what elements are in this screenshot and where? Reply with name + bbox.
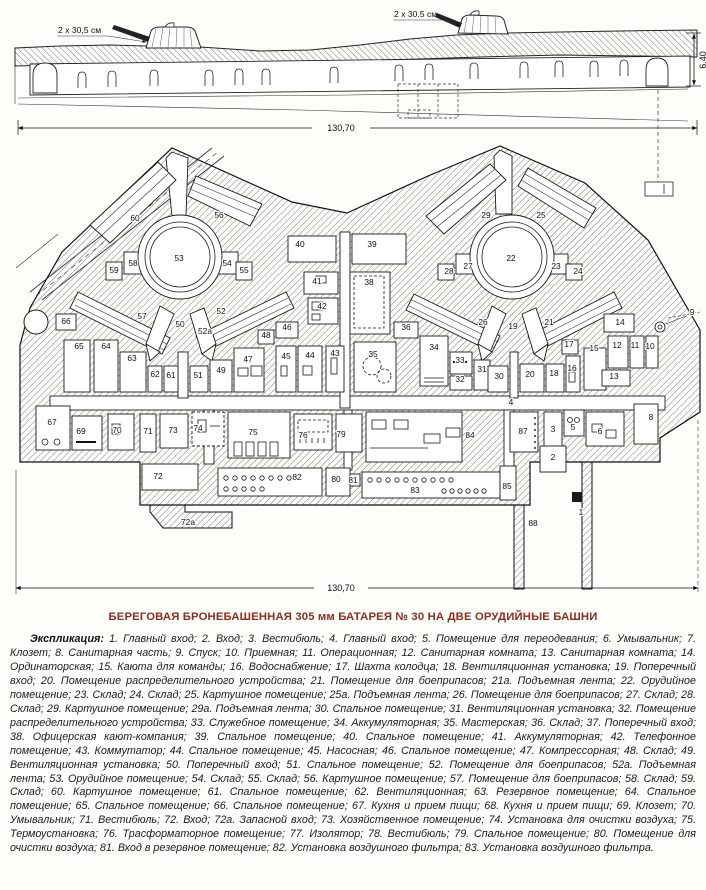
room-number-label: 18	[549, 368, 559, 378]
room-number-label: 62	[150, 369, 160, 379]
room-number-label: 10	[645, 341, 655, 351]
room-number-label: 74	[193, 423, 203, 433]
room-number-label: 70	[112, 425, 122, 435]
room-number-label: 22	[506, 253, 516, 263]
room-number-label: 87	[518, 426, 528, 436]
room-number-label: 9	[690, 307, 695, 317]
room-number-label: 83	[410, 485, 420, 495]
room-number-label: 53	[174, 253, 184, 263]
room-number-label: 41	[312, 276, 322, 286]
room-number-label: 85	[502, 481, 512, 491]
room-number-label: 54	[222, 258, 232, 268]
room-number-label: 58	[128, 258, 138, 268]
room-number-label: 48	[261, 330, 271, 340]
room-number-label: 29	[481, 210, 491, 220]
section-length-dimension: 130,70	[18, 120, 697, 135]
right-gun-turret	[435, 11, 508, 34]
room-number-label: 55	[239, 265, 249, 275]
room-number-label: 49	[216, 365, 226, 375]
room-number-label: 57	[137, 311, 147, 321]
room-number-label: 28	[444, 266, 454, 276]
flank-tower	[24, 310, 48, 334]
room-number-label: 71	[143, 426, 153, 436]
left-gun-label: 2 х 30,5 см	[58, 25, 101, 35]
room-number-label: 23	[551, 261, 561, 271]
section-length-value: 130,70	[327, 123, 355, 133]
trench-wall-left	[514, 505, 524, 589]
room-number-label: 44	[305, 350, 315, 360]
room-number-label: 33	[455, 355, 465, 365]
right-gun-label: 2 х 30.5 см	[394, 9, 437, 19]
battery-drawing: 2 х 30,5 см 2 х 30.5 см 130,70 6,40	[0, 0, 706, 610]
section-height-value: 6,40	[698, 51, 706, 69]
room-number-label: 27	[463, 261, 473, 271]
room-number-label: 46	[282, 322, 292, 332]
room-number-label: 47	[243, 354, 253, 364]
room-number-label: 69	[76, 426, 86, 436]
room-number-label: 52	[216, 306, 226, 316]
room-number-label: 2	[551, 452, 556, 462]
room-number-label: 42	[317, 301, 327, 311]
room-number-label: 3	[551, 424, 556, 434]
room-number-label: 11	[631, 340, 640, 350]
room-number-label: 32	[455, 374, 465, 384]
room-number-label: 82	[292, 472, 302, 482]
room-number-label: 43	[330, 348, 340, 358]
room-number-label: 56	[214, 210, 224, 220]
room-number-label: 72а	[181, 517, 195, 527]
room-number-label: 21	[544, 317, 554, 327]
room-number-label: 17	[564, 339, 574, 349]
room-number-label: 80	[331, 474, 341, 484]
room-number-label: 34	[429, 342, 439, 352]
room-number-label: 19	[508, 321, 518, 331]
room-number-label: 73	[168, 425, 178, 435]
room-number-label: 60	[130, 213, 140, 223]
room-number-label: 4	[509, 397, 514, 407]
room-number-label: 38	[364, 277, 374, 287]
room-number-label: 76	[298, 430, 308, 440]
room-number-label: 66	[61, 316, 71, 326]
room-number-label: 39	[367, 239, 377, 249]
room-number-label: 26	[478, 317, 488, 327]
room-number-label: 36	[401, 322, 411, 332]
room-number-label: 72	[153, 471, 163, 481]
room-number-label: 13	[609, 371, 619, 381]
room-number-label: 14	[615, 317, 625, 327]
trench-wall-right	[582, 462, 592, 589]
shaft-link	[645, 90, 673, 196]
room-number-label: 75	[248, 427, 258, 437]
room-number-label: 61	[166, 370, 176, 380]
room-number-label: 16	[567, 363, 577, 373]
room-number-label: 25	[536, 210, 546, 220]
room-number-label: 51	[193, 370, 203, 380]
room-number-label: 8	[649, 412, 654, 422]
room-number-label: 64	[101, 341, 111, 351]
plan-view: 130,70 6056535859545557525052а6665646362…	[16, 146, 700, 594]
room-number-label: 88	[528, 518, 538, 528]
room-number-label: 67	[47, 417, 57, 427]
room-number-label: 79	[336, 429, 346, 439]
room-number-label: 6	[598, 426, 603, 436]
left-gun-turret	[112, 23, 201, 48]
room-number-label: 40	[295, 239, 305, 249]
room-number-label: 63	[127, 353, 137, 363]
room-number-label: 1	[579, 507, 584, 517]
page-title: БЕРЕГОВАЯ БРОНЕБАШЕННАЯ 305 мм БАТАРЕЯ №…	[0, 611, 706, 623]
section-view: 2 х 30,5 см 2 х 30.5 см 130,70 6,40	[15, 9, 706, 196]
room-number-label: 50	[175, 319, 185, 329]
room-number-label: 35	[368, 349, 378, 359]
room-number-label: 65	[74, 341, 84, 351]
room-number-label: 59	[109, 265, 119, 275]
room-number-label: 20	[525, 369, 535, 379]
room-number-label: 81	[348, 475, 358, 485]
room-number-label: 31	[477, 364, 487, 374]
room-number-label: 84	[465, 430, 475, 440]
room-number-label: 52а	[198, 326, 212, 336]
legend-text: Экспликация: 1. Главный вход; 2. Вход; 3…	[10, 633, 696, 856]
room-number-label: 12	[612, 340, 622, 350]
room-number-label: 45	[281, 351, 291, 361]
room-number-label: 5	[571, 422, 576, 432]
plan-length-value: 130,70	[327, 583, 355, 593]
scanned-book-page: 2 х 30,5 см 2 х 30.5 см 130,70 6,40	[0, 0, 706, 890]
room-number-label: 30	[494, 371, 504, 381]
room-number-label: 24	[573, 266, 583, 276]
main-entrance-marker	[572, 492, 582, 502]
room-number-label: 15	[589, 343, 599, 353]
